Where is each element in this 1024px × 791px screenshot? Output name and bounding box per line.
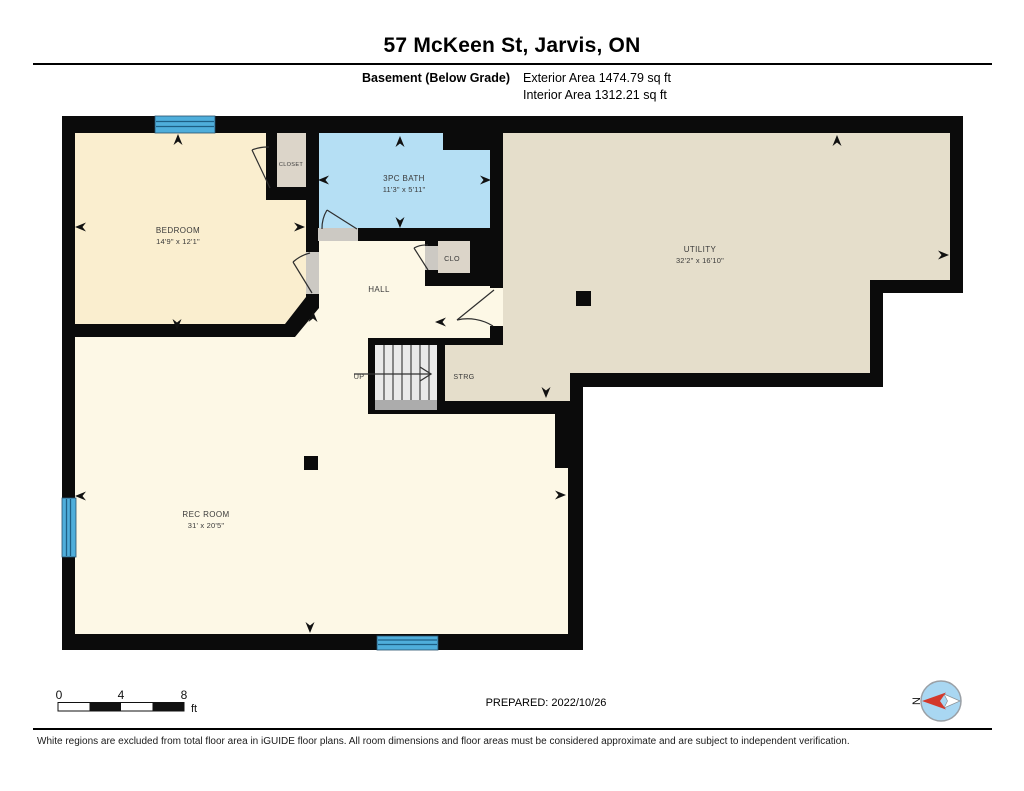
floor-plan-page: 57 McKeen St, Jarvis, ON Basement (Below… bbox=[0, 0, 1024, 791]
scale-bar-segment bbox=[90, 703, 122, 712]
hall-label: HALL bbox=[368, 285, 390, 294]
scale-bar: 0 4 8 ft bbox=[56, 688, 197, 715]
scale-unit: ft bbox=[191, 703, 197, 715]
room-closet bbox=[277, 133, 306, 187]
up-label: UP bbox=[354, 372, 365, 381]
rec-room-post bbox=[304, 456, 318, 470]
bedroom-dims: 14'9" x 12'1" bbox=[156, 237, 200, 246]
scale-bar-segment bbox=[153, 703, 185, 712]
scale-tick-0: 0 bbox=[56, 688, 63, 702]
rec-room-bottom-window bbox=[377, 636, 438, 650]
rec-room-left-window bbox=[62, 498, 76, 557]
disclaimer-text: White regions are excluded from total fl… bbox=[37, 736, 997, 747]
closet-label: CLOSET bbox=[279, 162, 303, 168]
stair-landing bbox=[375, 400, 437, 410]
utility-label: UTILITY bbox=[684, 245, 717, 254]
strg-label: STRG bbox=[453, 372, 474, 381]
floor-plan-canvas: BEDROOM 14'9" x 12'1" CLOSET 3PC BATH 11… bbox=[0, 0, 1024, 791]
scale-tick-4: 4 bbox=[118, 688, 125, 702]
rec-room-label: REC ROOM bbox=[182, 510, 229, 519]
clo-label: CLO bbox=[444, 254, 460, 263]
footer-divider bbox=[33, 728, 992, 730]
bedroom-window bbox=[155, 116, 215, 133]
bath-dims: 11'3" x 5'11" bbox=[383, 185, 426, 194]
rec-room-dims: 31' x 20'5" bbox=[188, 521, 225, 530]
utility-dims: 32'2" x 16'10" bbox=[676, 256, 724, 265]
utility-post bbox=[576, 291, 591, 306]
bath-label: 3PC BATH bbox=[383, 174, 425, 183]
compass-icon: N bbox=[911, 681, 961, 721]
prepared-date: PREPARED: 2022/10/26 bbox=[421, 697, 671, 709]
scale-tick-8: 8 bbox=[181, 688, 188, 702]
bedroom-label: BEDROOM bbox=[156, 226, 200, 235]
compass-north-label: N bbox=[911, 697, 923, 705]
